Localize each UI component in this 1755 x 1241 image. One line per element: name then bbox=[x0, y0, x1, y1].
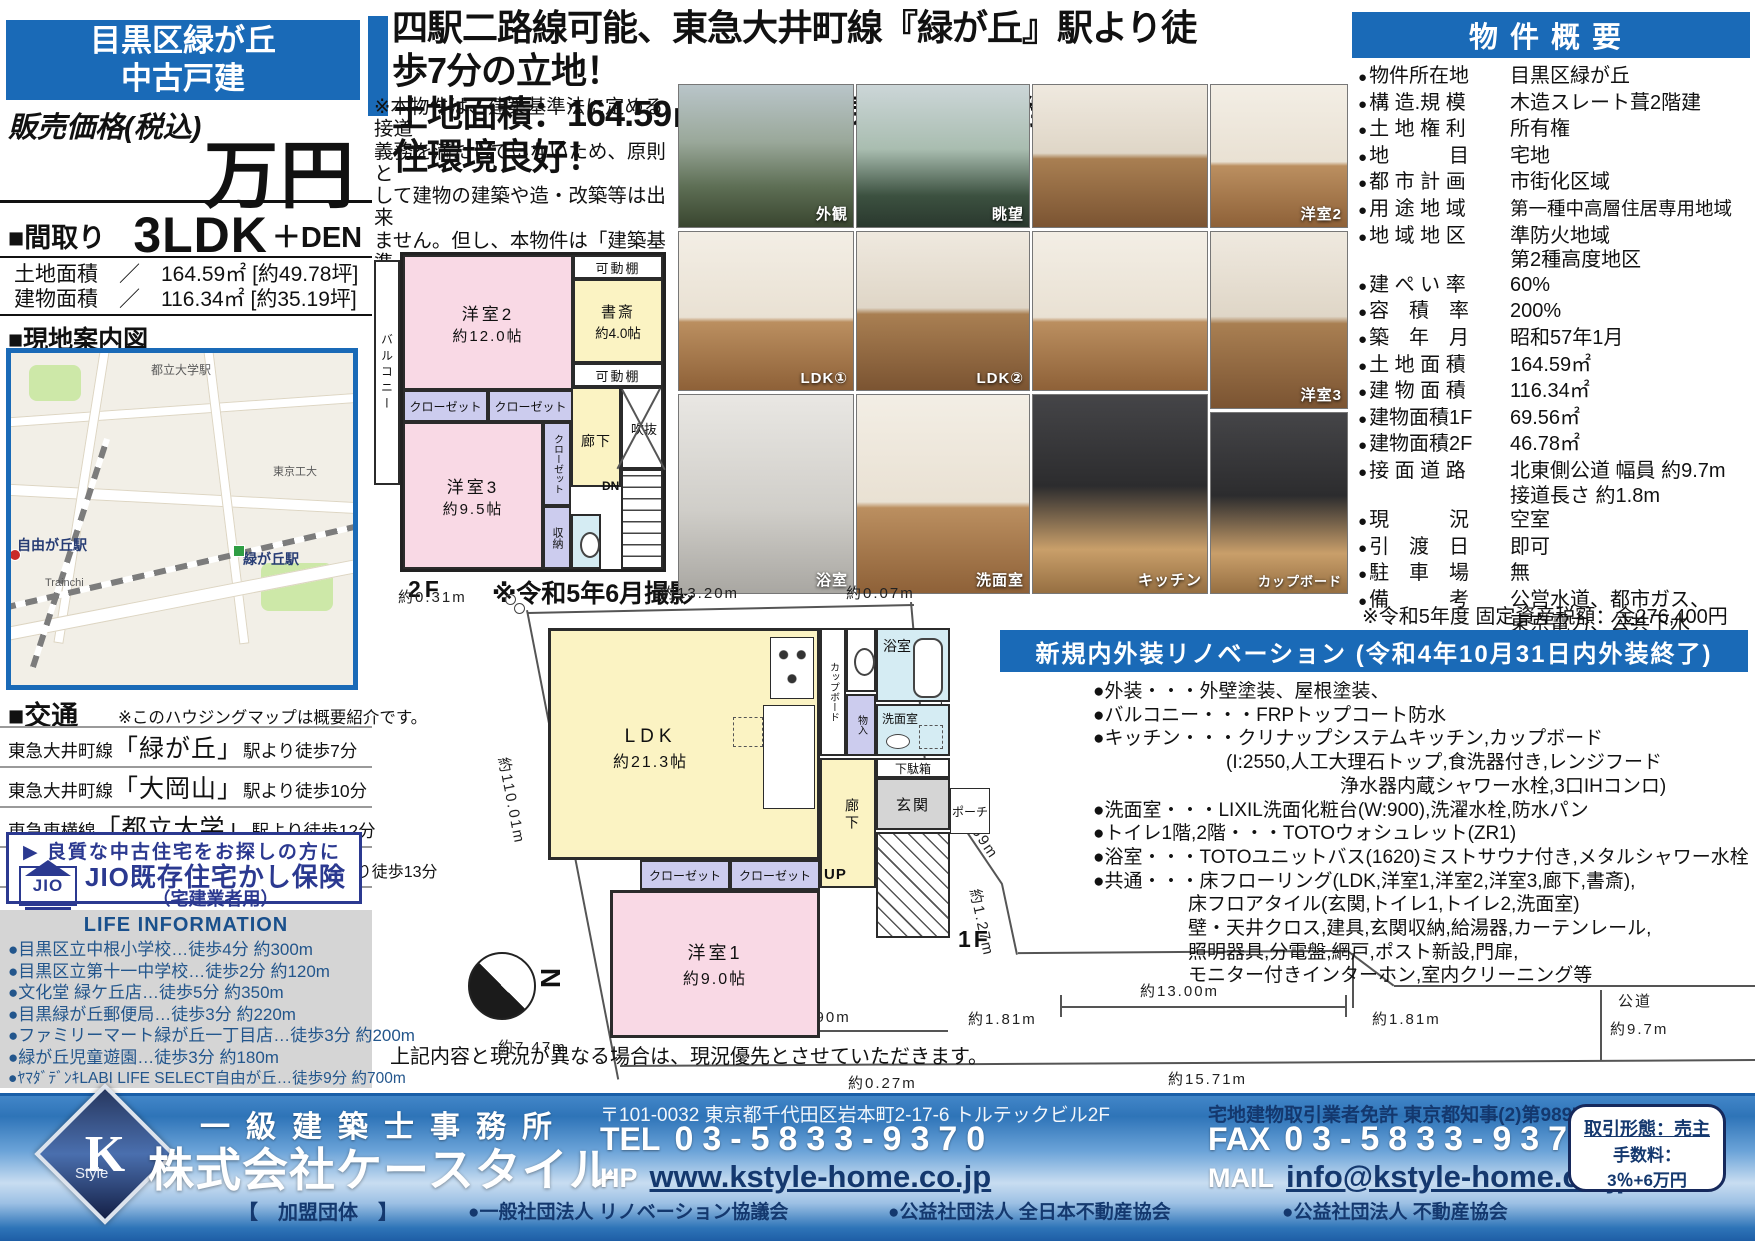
overview-table: 物件所在地目黒区緑が丘 構 造.規 模木造スレート葺2階建 土 地 権 利所有権… bbox=[1358, 64, 1754, 637]
road-width-arrow bbox=[1600, 990, 1602, 1060]
void-fukinuke: 吹抜 bbox=[621, 387, 663, 469]
member-org: ●公益社団法人 全日本不動産協会 bbox=[888, 1197, 1171, 1224]
overview-row: 現 況空室 bbox=[1358, 508, 1754, 535]
renovation-item: ●洗面室・・・LIXIL洗面化粧台(W:900),洗濯水栓,防水パン bbox=[1093, 799, 1753, 823]
building-area-row: 建物面積 ／ 116.34㎡ [約35.19坪] bbox=[14, 287, 357, 312]
member-label: 【 加盟団体 】 bbox=[238, 1196, 398, 1225]
overview-row: 建 物 面 積116.34㎡ bbox=[1358, 379, 1754, 406]
dim-tick bbox=[1345, 995, 1347, 1017]
renovation-list: ●外装・・・外壁塗装、屋根塗装、 ●バルコニー・・・FRPトップコート防水 ●キ… bbox=[1093, 680, 1753, 988]
toilet-2f bbox=[571, 514, 601, 569]
dim-seg-f: 約1.81m bbox=[1372, 1008, 1441, 1029]
dim-arrow-1300 bbox=[1062, 1006, 1345, 1008]
route-line: 東急大井町線 bbox=[8, 778, 113, 803]
compass-north-label: N bbox=[534, 968, 566, 988]
hp-label: HP bbox=[600, 1163, 638, 1194]
life-item: ●目黒区立中根小学校…徒歩4分 約300m bbox=[8, 939, 372, 961]
map-label-jiyugaoka: 自由が丘駅 bbox=[17, 535, 87, 555]
floorplan-2f: バルコニー 洋室2 約12.0帖 可動棚 書斎 約4.0帖 可動棚 クローゼット… bbox=[374, 252, 666, 574]
madori-label: ■間取り bbox=[8, 216, 105, 255]
photo-cupboard: カップボード bbox=[1210, 412, 1348, 594]
map-label-trainchi: Trainchi bbox=[45, 577, 84, 589]
route-walk: 駅より徒歩7分 bbox=[243, 738, 357, 763]
area-map: 都立大学駅 自由が丘駅 緑が丘駅 東京工大 Trainchi bbox=[6, 348, 358, 690]
life-title: LIFE INFORMATION bbox=[0, 914, 372, 937]
life-item: ●目黒区立第十一中学校…徒歩2分 約120m bbox=[8, 961, 372, 983]
overview-row: 駐 車 場無 bbox=[1358, 561, 1754, 588]
overview-row: 土 地 面 積164.59㎡ bbox=[1358, 353, 1754, 380]
footer: K Style 一級建築士事務所 株式会社ケースタイル 【 加盟団体 】 ●一般… bbox=[0, 1093, 1755, 1241]
cupboard-1f: カップボード bbox=[820, 628, 846, 756]
fax-label: FAX bbox=[1208, 1121, 1270, 1158]
overview-row: 容 積 率200% bbox=[1358, 299, 1754, 326]
stairs-1f bbox=[876, 832, 950, 938]
life-item: ●ファミリーマート緑が丘一丁目店…徒歩3分 約200m bbox=[8, 1025, 372, 1047]
location-badge: 目黒区緑が丘 中古戸建 bbox=[6, 20, 360, 100]
divider bbox=[0, 256, 372, 258]
deal-fee-label: 手数料： bbox=[1571, 1141, 1723, 1166]
room-washroom: 洗面室 bbox=[876, 704, 950, 756]
badge-line1: 目黒区緑が丘 bbox=[90, 22, 276, 60]
room-balcony: バルコニー bbox=[374, 260, 400, 485]
photo-youshitsu2: 洋室2 bbox=[1210, 84, 1348, 228]
company-name: 株式会社ケースタイル bbox=[148, 1134, 616, 1200]
closet: クローゼット bbox=[730, 860, 820, 890]
site-boundary-diag2 bbox=[1001, 884, 1018, 955]
route-walk: 駅より徒歩10分 bbox=[243, 778, 367, 803]
toilet-icon bbox=[580, 532, 600, 558]
renovation-item: (I:2550,人工大理石トップ,食洗器付き,レンジフード bbox=[1093, 751, 1753, 775]
life-item: ●文化堂 緑ケ丘店…徒歩5分 約350m bbox=[8, 982, 372, 1004]
toilet-icon bbox=[854, 648, 875, 676]
storage-2f: 収納 bbox=[543, 506, 571, 569]
closet: クローゼット bbox=[640, 860, 730, 890]
life-item: ●緑が丘児童遊園…徒歩3分 約180m bbox=[8, 1047, 372, 1069]
road-label: 公道 bbox=[1618, 990, 1652, 1011]
bathtub-icon bbox=[913, 638, 943, 698]
life-item: ●ﾔﾏﾀﾞﾃﾞﾝｷLABI LIFE SELECT自由が丘…徒歩9分 約700m bbox=[8, 1068, 372, 1090]
hp-row: HP www.kstyle-home.co.jp bbox=[600, 1159, 991, 1195]
kitchen-counter bbox=[763, 705, 815, 809]
dim-top-right: 約0.07m bbox=[846, 582, 915, 603]
room-youshitsu1: 洋室1 約9.0帖 bbox=[610, 890, 820, 1038]
renovation-item: モニター付きインターホン,室内クリーニング等 bbox=[1093, 964, 1753, 988]
overview-row: 物件所在地目黒区緑が丘 bbox=[1358, 64, 1754, 91]
stairs-up-label: UP bbox=[824, 866, 847, 883]
photo-room-b bbox=[1032, 231, 1208, 391]
member-org: ●公益社団法人 不動産協会 bbox=[1282, 1197, 1508, 1224]
life-information-box: LIFE INFORMATION ●目黒区立中根小学校…徒歩4分 約300m ●… bbox=[0, 910, 372, 1088]
closet: クローゼット bbox=[488, 390, 573, 422]
madori-suffix: ＋DEN bbox=[272, 214, 362, 256]
jio-main: JIO既存住宅かし保険 bbox=[85, 864, 346, 890]
dim-left-edge: 約110.01m bbox=[493, 755, 530, 846]
plan1f-floor-label: 1F bbox=[958, 926, 991, 953]
stove-icon bbox=[770, 637, 814, 699]
jio-logo: JIO bbox=[19, 866, 77, 906]
overview-row: 地 目宅地 bbox=[1358, 144, 1754, 171]
room-youshitsu3: 洋室3 約9.5帖 bbox=[403, 422, 543, 569]
room-den: 書斎 約4.0帖 bbox=[573, 279, 663, 363]
deal-fee-value: 3％+6万円 bbox=[1571, 1166, 1723, 1191]
room-entry: 玄関 bbox=[876, 778, 950, 830]
overview-row: 建 ぺ い 率60% bbox=[1358, 273, 1754, 300]
room-bath: 浴室 bbox=[876, 628, 950, 702]
overview-row: 接 面 道 路北東側公道 幅員 約9.7m 接道長さ 約1.8m bbox=[1358, 459, 1754, 508]
fax-number: 03-5833-9371 bbox=[1284, 1120, 1604, 1159]
boundary-marker bbox=[505, 594, 516, 605]
porch: ポーチ bbox=[950, 788, 990, 834]
renovation-item: ●共通・・・床フローリング(LDK,洋室1,洋室2,洋室3,廊下,書斎), bbox=[1093, 870, 1753, 894]
boundary-marker bbox=[514, 603, 525, 614]
logo-style: Style bbox=[75, 1165, 108, 1182]
tel-label: TEL bbox=[600, 1121, 660, 1158]
photo-kitchen: キッチン bbox=[1032, 394, 1208, 594]
renovation-item: ●外装・・・外壁塗装、屋根塗装、 bbox=[1093, 680, 1753, 704]
hall-2f: 廊下 bbox=[571, 387, 621, 487]
dim-seg-a: 約1.81m bbox=[968, 1008, 1037, 1029]
toilet-1f bbox=[846, 628, 876, 692]
jio-insurance-box: ▶ 良質な中古住宅をお探しの方に JIO JIO既存住宅かし保険 （宅建業者用） bbox=[6, 832, 362, 904]
room-ldk: LDK 約21.3帖 bbox=[548, 628, 820, 860]
map-label-tokyo-tech: 東京工大 bbox=[273, 463, 317, 479]
map-station-icon bbox=[233, 545, 245, 557]
access-note: ※このハウジングマップは概要紹介です。 bbox=[118, 704, 427, 728]
photo-ldk-2: LDK② bbox=[856, 231, 1030, 391]
overview-row: 建物面積2F46.78㎡ bbox=[1358, 432, 1754, 459]
closet: クローゼット bbox=[403, 390, 488, 422]
photo-bathroom: 浴室 bbox=[678, 394, 854, 594]
property-tax-note: ※令和5年度 固定資産税額：金276,400円 bbox=[1362, 600, 1728, 629]
access-route: 東急大井町線 「大岡山」 駅より徒歩10分 bbox=[0, 768, 372, 808]
washer-space bbox=[919, 725, 943, 749]
overview-row: 用 途 地 域第一種中高層住居専用地域 bbox=[1358, 197, 1754, 224]
overview-row: 土 地 権 利所有権 bbox=[1358, 117, 1754, 144]
map-label-midorigaoka: 緑が丘駅 bbox=[243, 549, 299, 569]
photo-exterior: 外観 bbox=[678, 84, 854, 228]
map-park bbox=[29, 365, 81, 401]
closet-vertical: クローゼット bbox=[543, 422, 571, 506]
overview-row: 地 域 地 区準防火地域 第2種高度地区 bbox=[1358, 224, 1754, 273]
room-youshitsu2: 洋室2 約12.0帖 bbox=[403, 255, 573, 390]
map-road bbox=[6, 484, 358, 515]
stairs-dn-label: DN bbox=[602, 480, 614, 492]
renovation-item: 浄水器内蔵シャワー水栓,3口IHコンロ) bbox=[1093, 775, 1753, 799]
jio-logo-text: JIO bbox=[33, 876, 63, 896]
renovation-item: 照明器具,分電盤,網戸,ポスト新設,門扉, bbox=[1093, 941, 1753, 965]
headline-line1: 四駅二路線可能、東急大井町線『緑が丘』駅より徒歩7分の立地！ bbox=[392, 6, 1222, 92]
badge-line2: 中古戸建 bbox=[121, 60, 245, 98]
photo-washroom: 洗面室 bbox=[856, 394, 1030, 594]
compass-icon bbox=[468, 952, 536, 1020]
renovation-item: ●浴室・・・TOTOユニットバス(1620)ミストサウナ付き,メタルシャワー水栓 bbox=[1093, 846, 1753, 870]
life-item: ●目黒緑が丘郵便局…徒歩3分 約220m bbox=[8, 1004, 372, 1026]
overview-row: 築 年 月昭和57年1月 bbox=[1358, 326, 1754, 353]
disclaimer: 上記内容と現況が異なる場合は、現況優先とさせていただきます。 bbox=[390, 1040, 988, 1069]
overview-row: 構 造.規 模木造スレート葺2階建 bbox=[1358, 91, 1754, 118]
divider bbox=[0, 314, 372, 316]
shelf-top: 可動棚 bbox=[573, 255, 663, 279]
dim-top: 約13.20m bbox=[660, 582, 739, 603]
photo-view: 眺望 bbox=[856, 84, 1030, 228]
dim-left-top: 約0.31m bbox=[398, 586, 467, 607]
overview-header: 物件概要 bbox=[1352, 12, 1750, 58]
deal-type-box: 取引形態：売主 手数料： 3％+6万円 bbox=[1568, 1104, 1726, 1192]
storage-mono: 物入 bbox=[846, 694, 876, 756]
tel-number: 03-5833-9370 bbox=[674, 1120, 994, 1159]
stairs-2f bbox=[621, 469, 663, 569]
overview-row: 建物面積1F69.56㎡ bbox=[1358, 406, 1754, 433]
fax-row: FAX 03-5833-9371 bbox=[1208, 1120, 1604, 1159]
overview-row: 都 市 計 画市街化区域 bbox=[1358, 170, 1754, 197]
dim-bottom: 約15.71m bbox=[1168, 1068, 1247, 1089]
renovation-item: 床フロアタイル(玄関,トイレ1,トイレ2,洗面室) bbox=[1093, 893, 1753, 917]
shoe-cabinet: 下駄箱 bbox=[876, 758, 950, 778]
hp-link[interactable]: www.kstyle-home.co.jp bbox=[650, 1159, 992, 1195]
jio-sub: （宅建業者用） bbox=[85, 890, 346, 908]
renovation-item: ●トイレ1階,2階・・・TOTOウォシュレット(ZR1) bbox=[1093, 822, 1753, 846]
map-label-toritsudaigaku: 都立大学駅 bbox=[151, 361, 211, 378]
map-marker-icon bbox=[9, 549, 21, 561]
photo-ldk-1: LDK① bbox=[678, 231, 854, 391]
mail-label: MAIL bbox=[1208, 1163, 1274, 1194]
renovation-item: ●キッチン・・・クリナップシステムキッチン,カップボード bbox=[1093, 727, 1753, 751]
flyer-page: 目黒区緑が丘 中古戸建 販売価格(税込) 万円 ■間取り 3LDK ＋DEN 土… bbox=[0, 0, 1755, 1241]
shelf-bottom: 可動棚 bbox=[573, 363, 663, 387]
road-width-label: 約9.7m bbox=[1610, 1018, 1668, 1039]
route-station: 「緑が丘」 bbox=[113, 729, 243, 765]
renovation-header: 新規内外装リノベーション (令和4年10月31日内外装終了) bbox=[1000, 630, 1748, 672]
route-station: 「大岡山」 bbox=[113, 769, 243, 805]
appliance-space bbox=[733, 717, 763, 747]
photo-youshitsu3: 洋室3 bbox=[1210, 231, 1348, 409]
renovation-item: ●バルコニー・・・FRPトップコート防水 bbox=[1093, 704, 1753, 728]
overview-row: 引 渡 日即可 bbox=[1358, 535, 1754, 562]
photo-room-a bbox=[1032, 84, 1208, 228]
divider bbox=[0, 200, 372, 203]
dim-seg-e: 約0.27m bbox=[848, 1072, 917, 1093]
deal-type: 取引形態：売主 bbox=[1571, 1115, 1723, 1141]
access-route: 東急大井町線 「緑が丘」 駅より徒歩7分 bbox=[0, 728, 372, 768]
route-line: 東急大井町線 bbox=[8, 738, 113, 763]
land-area-row: 土地面積 ／ 164.59㎡ [約49.78坪] bbox=[14, 262, 358, 287]
renovation-item: 壁・天井クロス,建具,玄関収納,給湯器,カーテンレール, bbox=[1093, 917, 1753, 941]
basin-icon bbox=[886, 734, 910, 749]
jio-lead: ▶ 良質な中古住宅をお探しの方に bbox=[23, 837, 359, 864]
member-org: ●一般社団法人 リノベーション協議会 bbox=[468, 1197, 788, 1224]
tel-row: TEL 03-5833-9370 bbox=[600, 1120, 994, 1159]
